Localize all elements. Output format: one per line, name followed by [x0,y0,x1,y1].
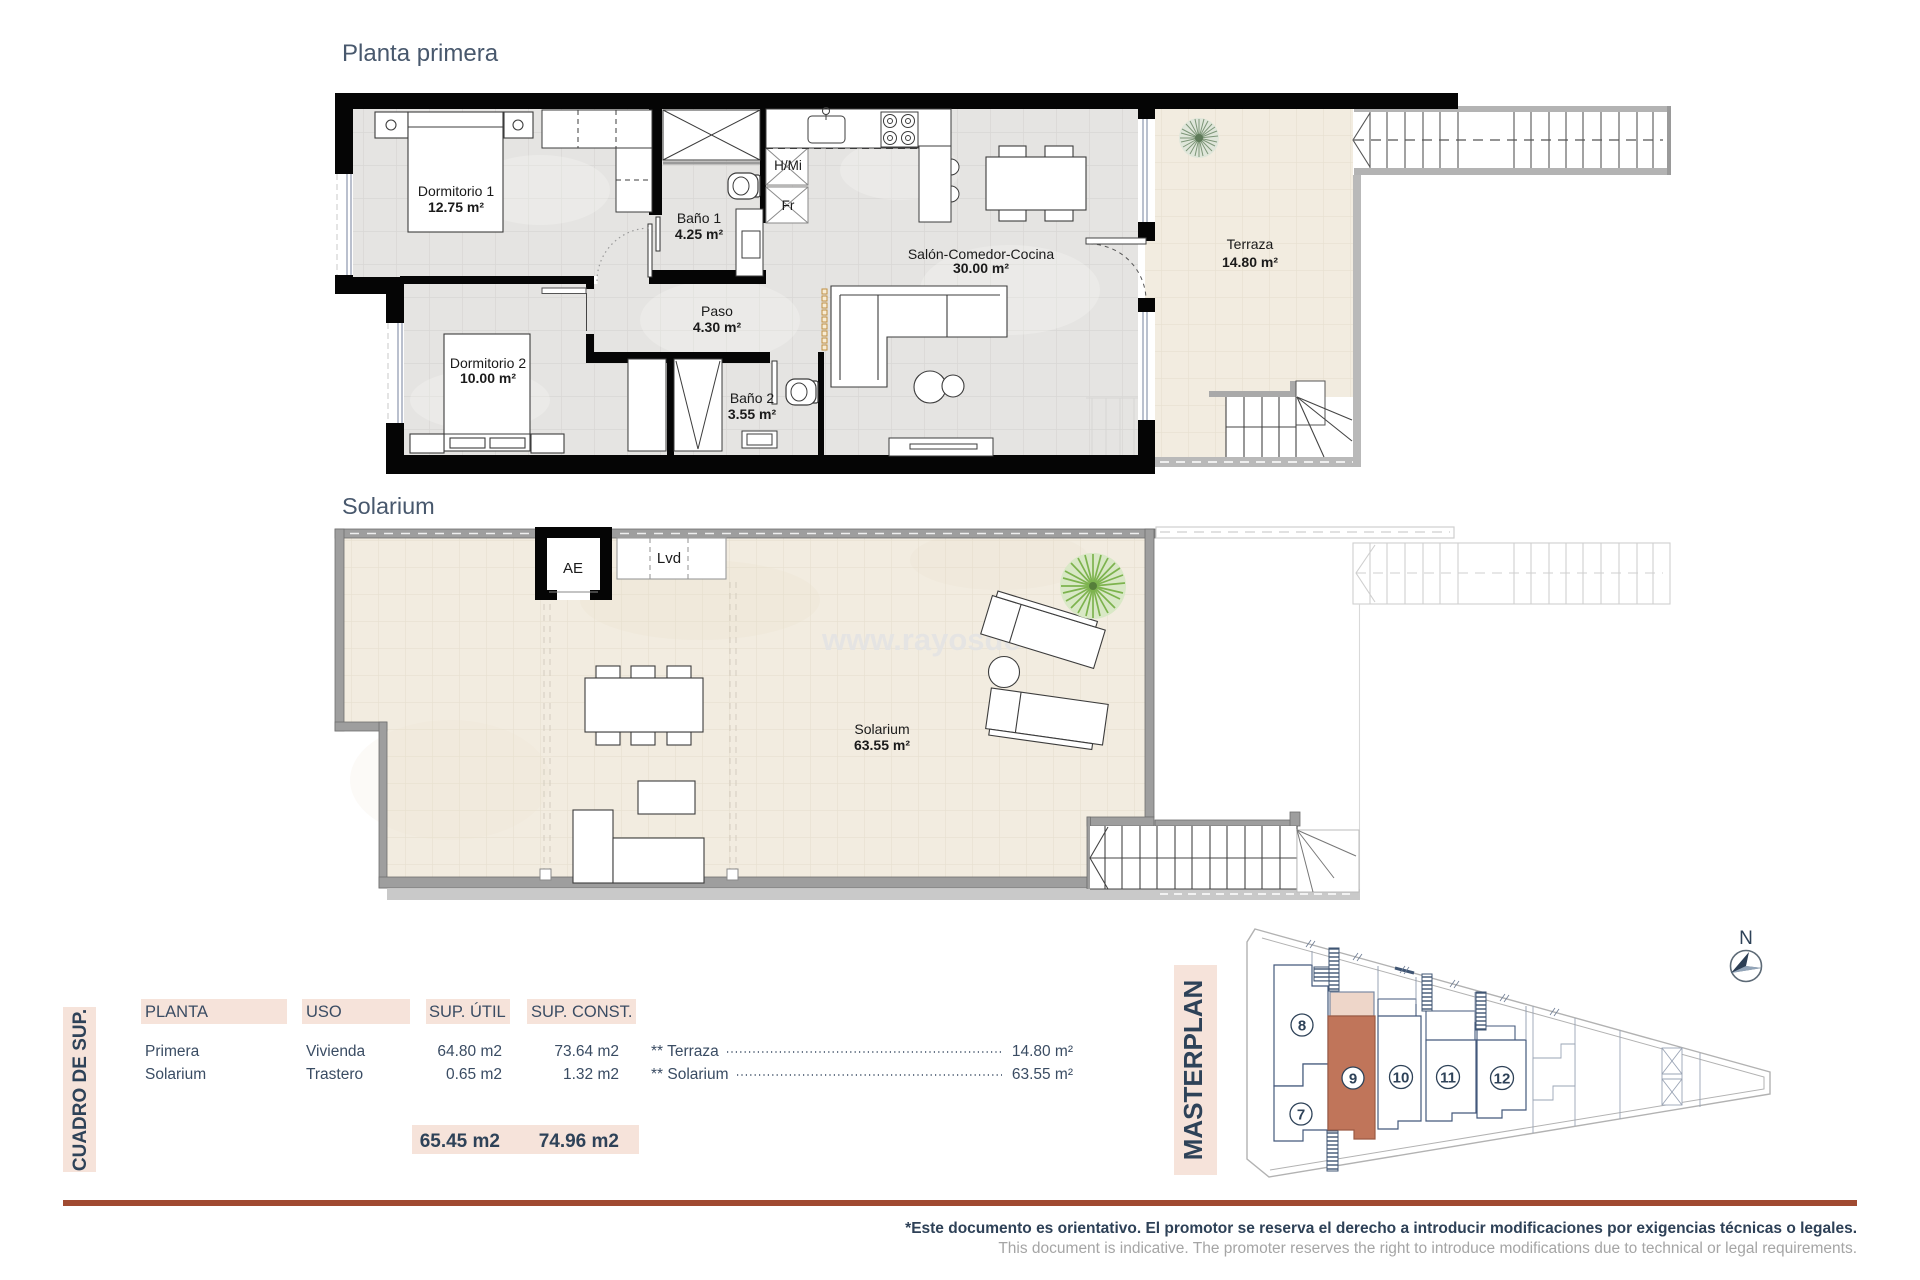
svg-text:7: 7 [1297,1107,1305,1124]
svg-text:Solarium: Solarium [854,721,909,737]
svg-text:Terraza: Terraza [1227,236,1274,252]
svg-text:Paso: Paso [701,303,733,319]
svg-text:AE: AE [563,560,583,577]
svg-text:10.00 m²: 10.00 m² [460,370,516,386]
svg-text:SUP. CONST.: SUP. CONST. [531,1003,632,1021]
svg-text:12.75 m²: 12.75 m² [428,199,484,215]
svg-text:3.55 m²: 3.55 m² [728,406,777,422]
svg-text:H/Mi: H/Mi [774,158,802,173]
svg-text:Baño 2: Baño 2 [730,390,775,406]
svg-text:Dormitorio 1: Dormitorio 1 [418,183,494,199]
svg-text:12: 12 [1494,1071,1511,1088]
svg-text:4.25 m²: 4.25 m² [675,226,724,242]
svg-text:This document is indicative. T: This document is indicative. The promote… [998,1240,1857,1257]
svg-text:PLANTA: PLANTA [145,1003,208,1021]
svg-text:14.80 m²: 14.80 m² [1012,1043,1073,1060]
svg-text:*Este documento es orientativo: *Este documento es orientativo. El promo… [905,1220,1857,1237]
svg-text:** Terraza: ** Terraza [651,1043,719,1060]
svg-text:11: 11 [1440,1070,1456,1087]
svg-text:** Solarium: ** Solarium [651,1066,729,1083]
svg-text:1.32 m2: 1.32 m2 [563,1066,619,1083]
svg-text:73.64 m2: 73.64 m2 [554,1043,619,1060]
svg-text:Solarium: Solarium [145,1066,206,1083]
svg-text:Lvd: Lvd [657,550,681,567]
svg-text:USO: USO [306,1003,342,1021]
svg-text:N: N [1739,928,1753,949]
svg-text:65.45 m2: 65.45 m2 [420,1131,500,1152]
svg-text:Fr: Fr [782,198,795,213]
svg-text:4.30 m²: 4.30 m² [693,319,742,335]
svg-text:Planta primera: Planta primera [342,40,499,67]
svg-text:MASTERPLAN: MASTERPLAN [1178,980,1208,1161]
svg-text:CUADRO DE SUP.: CUADRO DE SUP. [70,1009,91,1171]
svg-text:Solarium: Solarium [342,493,435,519]
svg-text:74.96 m2: 74.96 m2 [539,1131,619,1152]
svg-text:8: 8 [1298,1018,1306,1035]
svg-text:63.55 m²: 63.55 m² [1012,1066,1073,1083]
svg-text:14.80 m²: 14.80 m² [1222,254,1278,270]
svg-text:10: 10 [1393,1070,1410,1087]
svg-text:9: 9 [1349,1071,1357,1088]
svg-text:Primera: Primera [145,1043,200,1060]
svg-text:SUP. ÚTIL: SUP. ÚTIL [429,1002,506,1021]
svg-text:64.80 m2: 64.80 m2 [437,1043,502,1060]
svg-text:0.65 m2: 0.65 m2 [446,1066,502,1083]
svg-text:Baño 1: Baño 1 [677,210,722,226]
svg-text:Dormitorio 2: Dormitorio 2 [450,355,526,371]
svg-text:30.00 m²: 30.00 m² [953,260,1009,276]
svg-text:Trastero: Trastero [306,1066,363,1083]
svg-text:Vivienda: Vivienda [306,1043,366,1060]
svg-text:63.55 m²: 63.55 m² [854,737,910,753]
